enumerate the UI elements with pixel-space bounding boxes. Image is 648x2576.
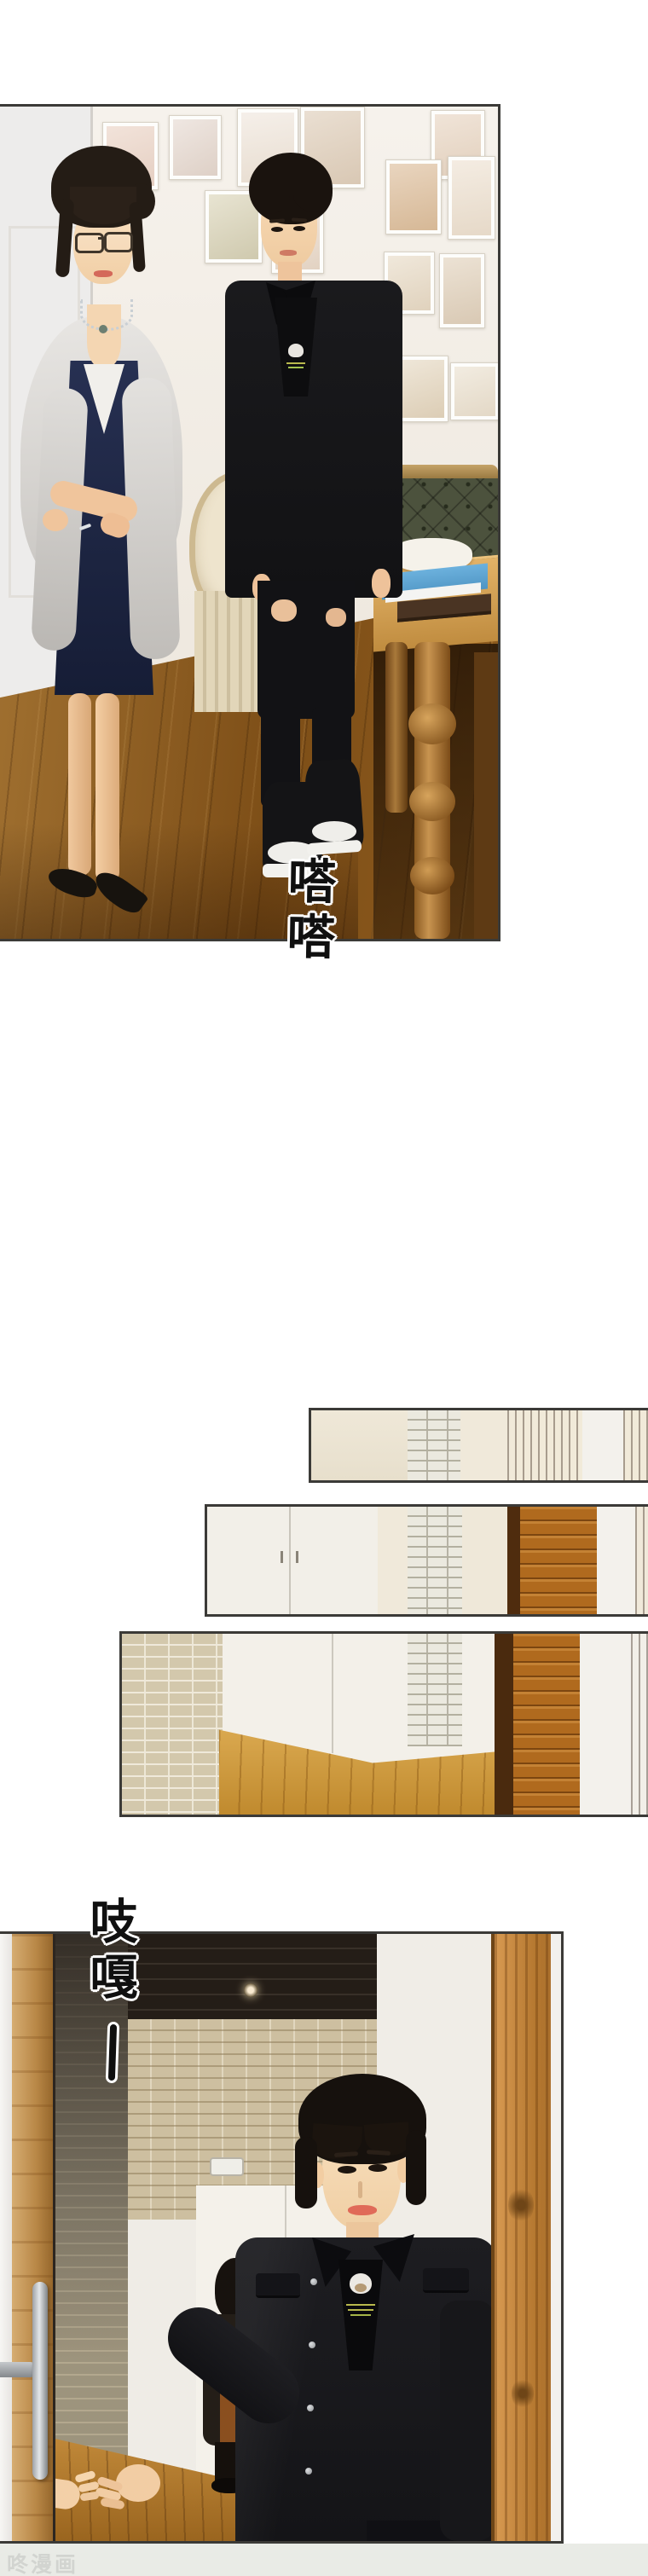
- bottom-band: [0, 2544, 648, 2576]
- wall-gap: [582, 1410, 623, 1480]
- man-lips: [348, 2205, 377, 2215]
- strip-hallway-3: [119, 1631, 648, 1817]
- woman-glasses: [75, 233, 104, 253]
- door-frame-wood: [507, 1410, 582, 1480]
- man-tee-logo-face: [355, 2284, 367, 2292]
- woman-lips: [94, 270, 113, 277]
- wall-gap: [580, 1634, 631, 1815]
- doorframe-right-wood: [491, 1934, 554, 2541]
- door-frame-wood: [623, 1410, 648, 1480]
- hall-wall: [462, 1507, 507, 1614]
- man-tee-text: [350, 2314, 371, 2316]
- woman-leg: [95, 693, 119, 883]
- door-frame-dark: [495, 1634, 513, 1815]
- sfx-creak: 吱嘎: [85, 1896, 133, 2007]
- recessed-light: [244, 1983, 257, 1997]
- hall-wall: [460, 1410, 510, 1480]
- sfx-tap: 嗒嗒: [282, 856, 332, 968]
- man-tee-logo: [288, 344, 304, 357]
- door-seam: [332, 1634, 333, 1753]
- white-brick-pillar: [408, 1634, 462, 1746]
- jacket-button: [305, 2468, 312, 2475]
- door-seam: [289, 1507, 291, 1614]
- white-brick-pillar: [408, 1507, 462, 1614]
- wood-knot: [508, 2186, 534, 2224]
- sneaker-toe: [312, 821, 356, 842]
- man-hair-side: [295, 2137, 317, 2208]
- ceiling-planks: [128, 1934, 377, 2021]
- jacket-button: [309, 2342, 315, 2348]
- door-handle-small: [281, 1551, 283, 1563]
- door-frame-wood: [635, 1507, 648, 1614]
- photo-frame: [450, 362, 500, 420]
- photo-frame: [448, 156, 495, 240]
- panel-doorway: [0, 1931, 564, 2544]
- man-eye: [368, 2164, 387, 2172]
- jacket-button: [307, 2405, 314, 2411]
- man-tee-text: [288, 367, 304, 368]
- door-frame-wood: [631, 1634, 648, 1815]
- desk-leg-bulge: [410, 857, 454, 894]
- man-jeans-hip: [257, 581, 355, 719]
- door-handle-bar: [32, 2282, 48, 2480]
- man-eye: [338, 2166, 356, 2174]
- panel-studio: [0, 104, 500, 941]
- wood-knot: [512, 2377, 534, 2410]
- door-plaque: [210, 2157, 244, 2176]
- photo-frame: [169, 115, 222, 180]
- woman-hand: [43, 509, 68, 531]
- man-tee-text: [348, 2309, 373, 2311]
- door-frame-dark: [507, 1507, 520, 1614]
- jacket-pocket: [256, 2273, 300, 2298]
- woman-pendant: [99, 325, 107, 333]
- photo-frame: [439, 253, 485, 328]
- woman-glasses: [104, 232, 133, 252]
- man-eye: [293, 226, 305, 231]
- photo-frame: [385, 159, 442, 234]
- man-knee-rip: [326, 608, 346, 627]
- man-nose-shadow: [358, 2181, 362, 2198]
- comic-page: 嗒嗒 吱嘎: [0, 0, 648, 2576]
- man-hair-side: [406, 2130, 426, 2205]
- door-handle-small: [296, 1551, 298, 1563]
- woman-leg: [68, 693, 91, 876]
- jacket-pocket: [423, 2268, 469, 2293]
- tan-brick-wall: [122, 1634, 223, 1815]
- man-hand-palm: [116, 2464, 160, 2502]
- desk-leg-bulge: [408, 703, 456, 744]
- wall-gap: [597, 1507, 635, 1614]
- wooden-door: [513, 1634, 580, 1815]
- strip-hallway-2: [205, 1504, 648, 1617]
- woman-bangs: [70, 187, 136, 224]
- jacket-button: [310, 2278, 317, 2285]
- wall-sliver-right: [551, 1934, 561, 2541]
- man-hand: [372, 569, 391, 598]
- man-right-arm: [440, 2301, 495, 2541]
- desk-leg-edge: [474, 652, 498, 939]
- woman-glasses-bridge: [98, 237, 105, 240]
- desk-leg-bulge: [409, 782, 455, 821]
- white-brick-pillar: [408, 1410, 460, 1480]
- white-double-doors: [207, 1507, 378, 1614]
- wooden-door: [520, 1507, 597, 1614]
- man-tee-text: [346, 2304, 375, 2306]
- desk-leg-far: [385, 642, 408, 813]
- hall-wall: [311, 1410, 410, 1480]
- watermark: 咚漫画: [7, 2548, 78, 2576]
- man-knee-rip: [271, 599, 297, 622]
- strip-hallway-1: [309, 1408, 648, 1483]
- man-tee-text: [286, 362, 305, 364]
- man-eye: [271, 227, 283, 232]
- glass-door-edge: [0, 1934, 12, 2541]
- man-lips: [280, 250, 297, 256]
